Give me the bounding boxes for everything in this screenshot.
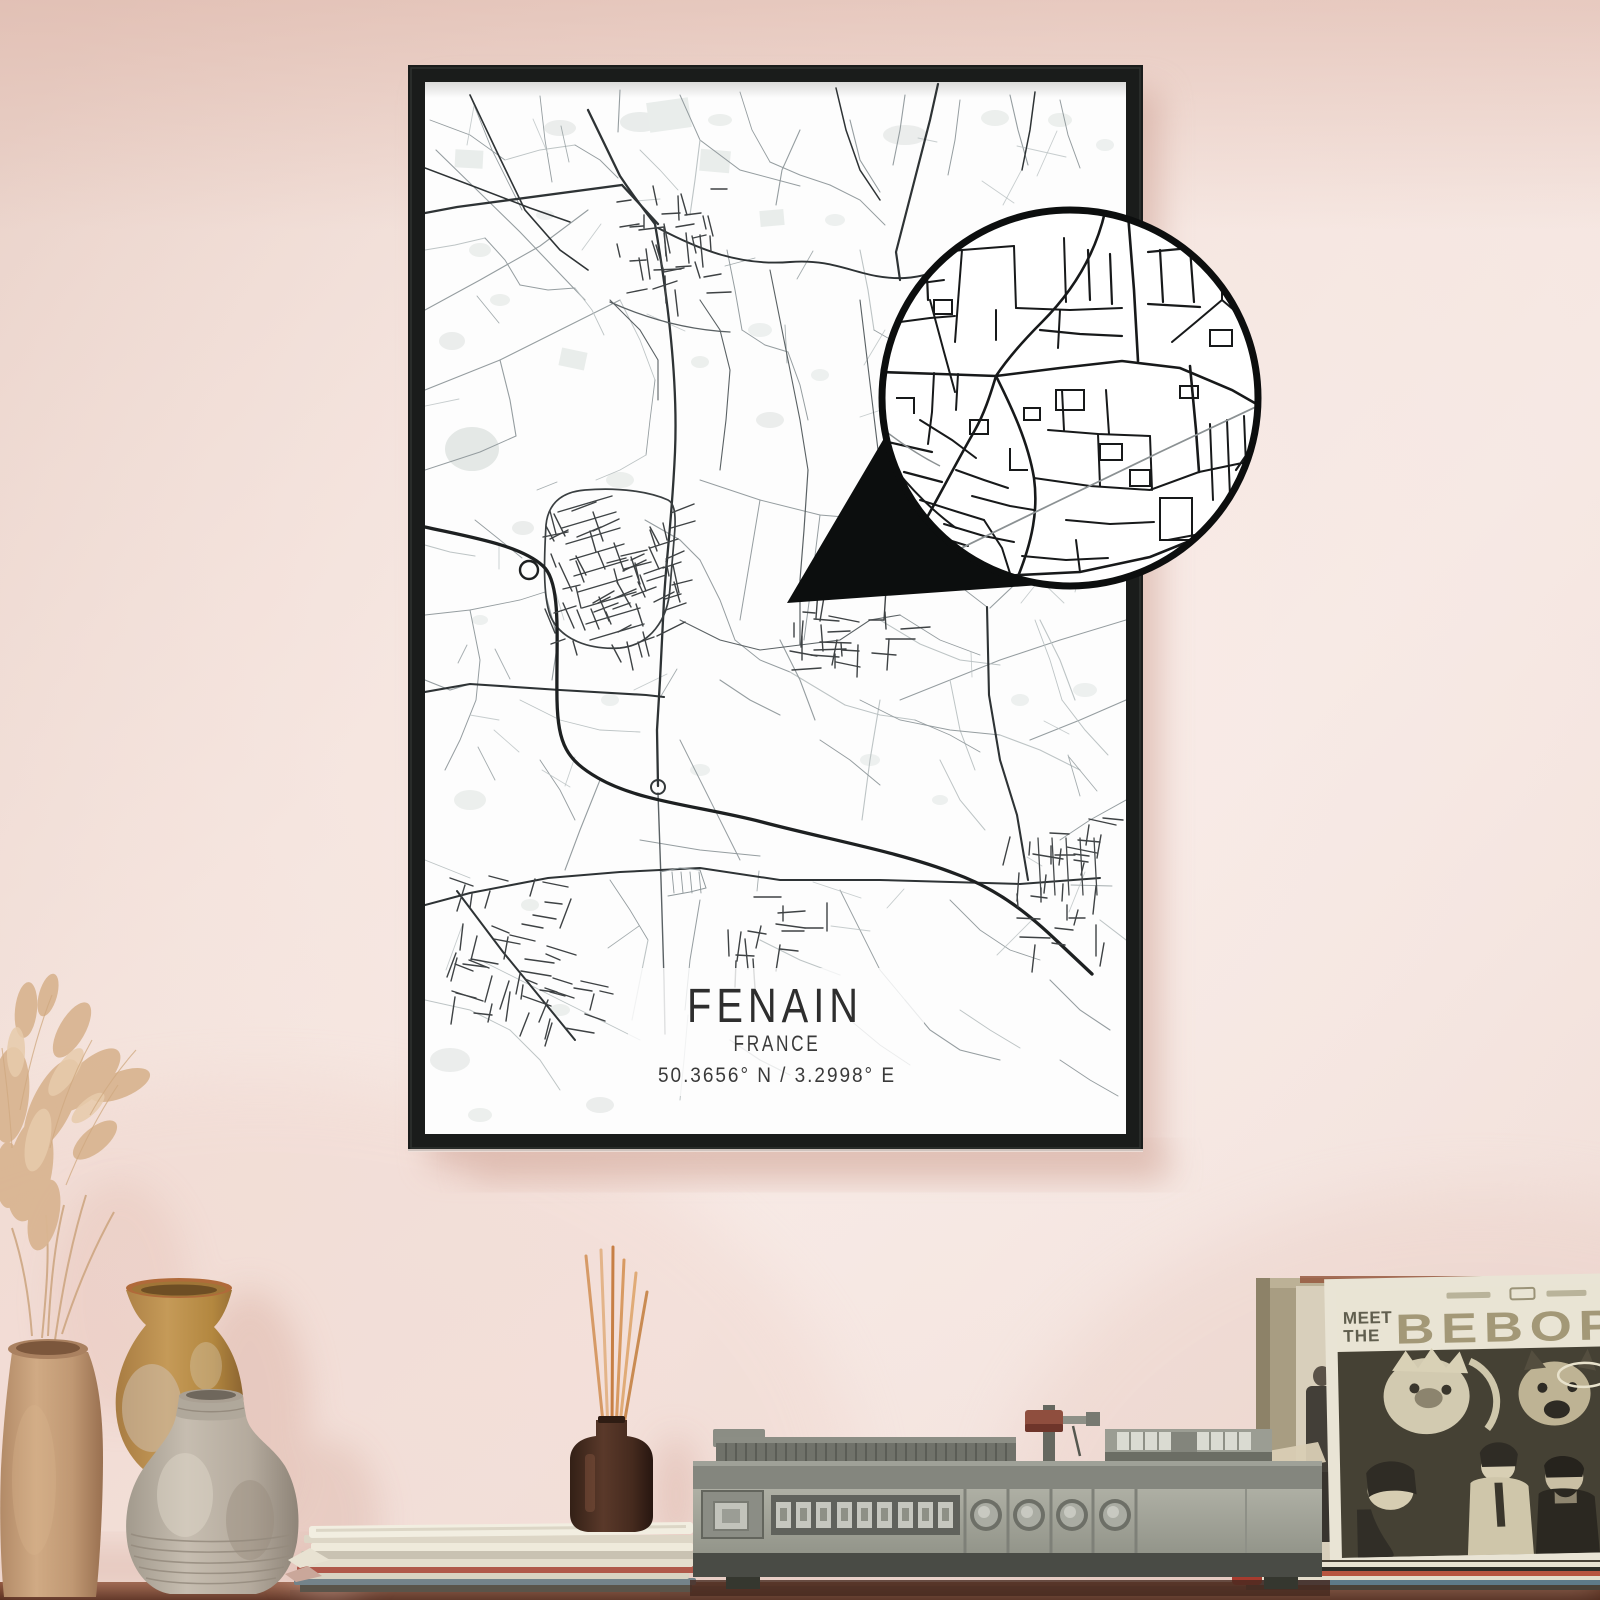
svg-text:MEET: MEET	[1343, 1308, 1393, 1328]
svg-text:FRANCE: FRANCE	[734, 1031, 821, 1056]
svg-text:BEBOP: BEBOP	[1395, 1301, 1600, 1353]
svg-text:THE: THE	[1343, 1326, 1380, 1346]
svg-text:50.3656° N / 3.2998° E: 50.3656° N / 3.2998° E	[658, 1063, 896, 1087]
svg-text:FENAIN: FENAIN	[687, 980, 863, 1033]
